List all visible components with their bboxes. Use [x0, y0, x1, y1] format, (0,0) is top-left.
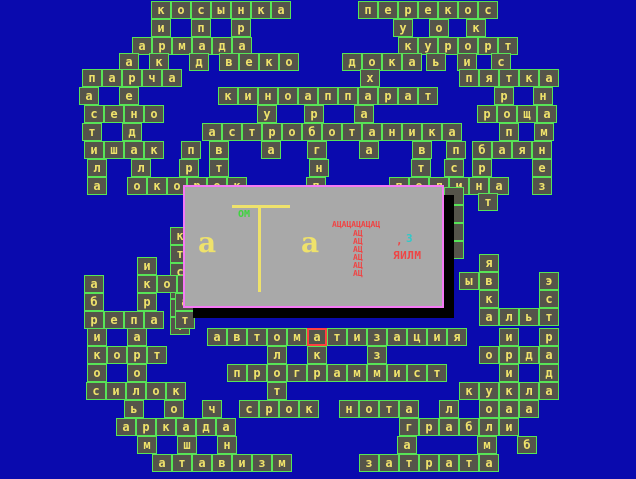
- crossword-cell[interactable]: п: [358, 1, 378, 19]
- crossword-cell[interactable]: а: [402, 53, 422, 71]
- crossword-cell[interactable]: б: [517, 436, 537, 454]
- crossword-cell[interactable]: д: [189, 53, 209, 71]
- crossword-cell[interactable]: а: [354, 105, 374, 123]
- crossword-cell[interactable]: а: [261, 141, 281, 159]
- crossword-cell[interactable]: р: [137, 293, 157, 311]
- crossword-cell[interactable]: о: [146, 382, 166, 400]
- crossword-cell[interactable]: а: [327, 364, 347, 382]
- crossword-cell[interactable]: с: [191, 1, 211, 19]
- crossword-cell[interactable]: у: [393, 19, 413, 37]
- crossword-cell[interactable]: к: [307, 346, 327, 364]
- crossword-cell[interactable]: о: [278, 87, 298, 105]
- crossword-cell[interactable]: р: [472, 159, 492, 177]
- crossword-cell[interactable]: ь: [426, 53, 446, 71]
- crossword-cell[interactable]: ь: [124, 400, 144, 418]
- crossword-cell[interactable]: с: [478, 1, 498, 19]
- cyan-z-label: З: [406, 233, 413, 244]
- crossword-cell[interactable]: и: [84, 141, 104, 159]
- crossword-cell[interactable]: а: [87, 177, 107, 195]
- crossword-cell[interactable]: и: [232, 454, 252, 472]
- crossword-cell[interactable]: л: [87, 159, 107, 177]
- crossword-cell[interactable]: т: [478, 193, 498, 211]
- crossword-cell[interactable]: п: [318, 87, 338, 105]
- crossword-cell[interactable]: г: [287, 364, 307, 382]
- crossword-cell[interactable]: п: [191, 19, 211, 37]
- crossword-cell[interactable]: т: [247, 328, 267, 346]
- crossword-cell[interactable]: о: [107, 346, 127, 364]
- crossword-cell[interactable]: г: [399, 418, 419, 436]
- crossword-cell[interactable]: л: [499, 308, 519, 326]
- crossword-cell[interactable]: а: [307, 328, 327, 346]
- crossword-cell[interactable]: а: [176, 418, 196, 436]
- crossword-cell[interactable]: о: [144, 105, 164, 123]
- crossword-cell[interactable]: т: [82, 123, 102, 141]
- crossword-cell[interactable]: к: [137, 275, 157, 293]
- crossword-cell[interactable]: о: [479, 400, 499, 418]
- crossword-cell[interactable]: а: [397, 436, 417, 454]
- crossword-cell[interactable]: р: [539, 328, 559, 346]
- crossword-cell[interactable]: б: [459, 418, 479, 436]
- crossword-cell[interactable]: е: [104, 105, 124, 123]
- crossword-cell[interactable]: а: [84, 275, 104, 293]
- crossword-cell[interactable]: а: [537, 105, 557, 123]
- crossword-cell[interactable]: к: [166, 382, 186, 400]
- crossword-cell[interactable]: р: [378, 87, 398, 105]
- crossword-cell[interactable]: е: [532, 159, 552, 177]
- crossword-cell[interactable]: а: [144, 311, 164, 329]
- crossword-cell[interactable]: м: [137, 436, 157, 454]
- crossword-cell[interactable]: а: [79, 87, 99, 105]
- crossword-cell[interactable]: с: [444, 159, 464, 177]
- crossword-cell[interactable]: и: [151, 19, 171, 37]
- crossword-cell[interactable]: а: [192, 454, 212, 472]
- crossword-cell[interactable]: н: [382, 123, 402, 141]
- crossword-cell[interactable]: а: [124, 141, 144, 159]
- crossword-cell[interactable]: м: [272, 454, 292, 472]
- crossword-cell[interactable]: а: [359, 141, 379, 159]
- crossword-cell[interactable]: р: [419, 418, 439, 436]
- crossword-cell[interactable]: э: [539, 272, 559, 290]
- crossword-cell[interactable]: у: [257, 105, 277, 123]
- crossword-cell[interactable]: т: [342, 123, 362, 141]
- crossword-cell[interactable]: а: [492, 141, 512, 159]
- crossword-cell[interactable]: а: [442, 123, 462, 141]
- crossword-cell[interactable]: о: [267, 328, 287, 346]
- crossword-cell[interactable]: и: [387, 364, 407, 382]
- crossword-cell[interactable]: р: [262, 123, 282, 141]
- big-letter-a-right: а: [301, 230, 319, 256]
- crossword-cell[interactable]: щ: [517, 105, 537, 123]
- crossword-cell[interactable]: а: [439, 418, 459, 436]
- crossword-cell[interactable]: к: [87, 346, 107, 364]
- crossword-cell[interactable]: х: [360, 69, 380, 87]
- crossword-cell[interactable]: а: [102, 69, 122, 87]
- crossword-cell[interactable]: а: [271, 1, 291, 19]
- dialog-window[interactable]: ОМ а а АЦАЦАЦАЦАЦ АЦАЦАЦАЦАЦАЦ , З ЯИЛМ: [183, 185, 444, 308]
- crossword-cell[interactable]: к: [299, 400, 319, 418]
- crossword-cell[interactable]: з: [252, 454, 272, 472]
- crossword-cell[interactable]: б: [472, 141, 492, 159]
- crossword-cell[interactable]: о: [359, 400, 379, 418]
- crossword-cell[interactable]: т: [459, 454, 479, 472]
- crossword-cell[interactable]: к: [144, 141, 164, 159]
- crossword-cell[interactable]: а: [379, 454, 399, 472]
- crossword-cell[interactable]: о: [157, 275, 177, 293]
- crossword-cell[interactable]: р: [231, 19, 251, 37]
- dialog-shadow: [444, 195, 454, 318]
- crossword-cell[interactable]: м: [534, 123, 554, 141]
- crossword-cell[interactable]: к: [218, 87, 238, 105]
- crossword-cell[interactable]: с: [407, 364, 427, 382]
- crossword-cell[interactable]: о: [171, 1, 191, 19]
- crossword-cell[interactable]: с: [86, 382, 106, 400]
- crossword-cell[interactable]: д: [196, 418, 216, 436]
- crossword-cell[interactable]: е: [378, 1, 398, 19]
- crossword-cell[interactable]: а: [479, 308, 499, 326]
- crossword-cell[interactable]: м: [367, 364, 387, 382]
- crossword-cell[interactable]: к: [151, 1, 171, 19]
- crossword-cell[interactable]: в: [479, 272, 499, 290]
- crossword-cell[interactable]: е: [119, 87, 139, 105]
- crossword-cell[interactable]: а: [216, 418, 236, 436]
- crossword-cell[interactable]: я: [512, 141, 532, 159]
- crossword-cell[interactable]: д: [539, 364, 559, 382]
- crossword-cell[interactable]: е: [104, 311, 124, 329]
- crossword-cell[interactable]: у: [479, 382, 499, 400]
- crossword-cell[interactable]: р: [398, 1, 418, 19]
- crossword-cell[interactable]: о: [479, 346, 499, 364]
- crossword-cell[interactable]: ь: [519, 308, 539, 326]
- crossword-cell[interactable]: з: [359, 454, 379, 472]
- crossword-cell[interactable]: с: [222, 123, 242, 141]
- crossword-cell[interactable]: г: [307, 141, 327, 159]
- crossword-cell[interactable]: а: [298, 87, 318, 105]
- crossword-cell[interactable]: а: [127, 328, 147, 346]
- crossword-cell[interactable]: а: [479, 454, 499, 472]
- yellow-t-bar-vertical: [258, 205, 261, 292]
- crossword-cell[interactable]: н: [339, 400, 359, 418]
- crossword-cell[interactable]: а: [162, 69, 182, 87]
- crossword-cell[interactable]: а: [116, 418, 136, 436]
- crossword-cell[interactable]: л: [479, 418, 499, 436]
- crossword-cell[interactable]: н: [124, 105, 144, 123]
- crossword-cell[interactable]: н: [217, 436, 237, 454]
- crossword-cell[interactable]: т: [427, 364, 447, 382]
- crossword-cell[interactable]: в: [219, 53, 239, 71]
- crossword-cell[interactable]: с: [84, 105, 104, 123]
- crossword-cell[interactable]: к: [147, 177, 167, 195]
- crossword-cell[interactable]: н: [309, 159, 329, 177]
- crossword-cell[interactable]: о: [279, 400, 299, 418]
- crossword-cell[interactable]: и: [106, 382, 126, 400]
- crossword-cell[interactable]: и: [137, 257, 157, 275]
- crossword-cell[interactable]: к: [251, 1, 271, 19]
- crossword-cell[interactable]: о: [164, 400, 184, 418]
- crossword-cell[interactable]: в: [209, 141, 229, 159]
- crossword-cell[interactable]: в: [227, 328, 247, 346]
- crossword-cell[interactable]: ц: [407, 328, 427, 346]
- crossword-cell[interactable]: м: [287, 328, 307, 346]
- yailm-label: ЯИЛМ: [393, 250, 422, 261]
- crossword-cell[interactable]: о: [87, 364, 107, 382]
- big-letter-a-left: а: [198, 230, 216, 256]
- crossword-cell[interactable]: ш: [177, 436, 197, 454]
- crossword-cell[interactable]: и: [347, 328, 367, 346]
- crossword-cell[interactable]: а: [499, 400, 519, 418]
- crossword-cell[interactable]: ы: [459, 272, 479, 290]
- crossword-cell[interactable]: в: [412, 141, 432, 159]
- crossword-cell[interactable]: а: [202, 123, 222, 141]
- crossword-cell[interactable]: л: [131, 159, 151, 177]
- crossword-cell[interactable]: м: [477, 436, 497, 454]
- crossword-cell[interactable]: к: [438, 1, 458, 19]
- crossword-cell[interactable]: л: [126, 382, 146, 400]
- crossword-cell[interactable]: т: [172, 454, 192, 472]
- crossword-cell[interactable]: к: [519, 69, 539, 87]
- crossword-cell[interactable]: з: [532, 177, 552, 195]
- yellow-t-bar-horizontal: [232, 205, 290, 208]
- crossword-cell[interactable]: д: [342, 53, 362, 71]
- crossword-cell[interactable]: и: [499, 418, 519, 436]
- crossword-cell[interactable]: а: [519, 400, 539, 418]
- crossword-cell[interactable]: а: [362, 123, 382, 141]
- crossword-cell[interactable]: а: [539, 346, 559, 364]
- crossword-cell[interactable]: т: [399, 454, 419, 472]
- crossword-cell[interactable]: т: [499, 69, 519, 87]
- crossword-cell[interactable]: ч: [202, 400, 222, 418]
- crossword-cell[interactable]: к: [479, 290, 499, 308]
- crossword-cell[interactable]: т: [267, 382, 287, 400]
- crossword-cell[interactable]: в: [212, 454, 232, 472]
- crossword-cell[interactable]: и: [499, 328, 519, 346]
- crossword-cell[interactable]: д: [519, 346, 539, 364]
- crossword-cell[interactable]: т: [209, 159, 229, 177]
- crossword-cell[interactable]: и: [87, 328, 107, 346]
- crossword-cell[interactable]: о: [497, 105, 517, 123]
- crossword-cell[interactable]: т: [242, 123, 262, 141]
- crossword-cell[interactable]: а: [439, 454, 459, 472]
- crossword-cell[interactable]: к: [422, 123, 442, 141]
- game-screen: косынкаипрперекосуокармадакурортакдвекод…: [0, 0, 636, 479]
- crossword-cell[interactable]: р: [179, 159, 199, 177]
- crossword-cell[interactable]: п: [227, 364, 247, 382]
- crossword-cell[interactable]: к: [156, 418, 176, 436]
- crossword-cell[interactable]: к: [466, 19, 486, 37]
- crossword-cell[interactable]: т: [327, 328, 347, 346]
- crossword-cell[interactable]: з: [367, 346, 387, 364]
- crossword-cell[interactable]: о: [127, 364, 147, 382]
- crossword-cell[interactable]: и: [402, 123, 422, 141]
- crossword-cell[interactable]: р: [477, 105, 497, 123]
- dialog-shadow: [193, 308, 454, 318]
- crossword-cell[interactable]: ш: [104, 141, 124, 159]
- crossword-cell[interactable]: р: [307, 364, 327, 382]
- crossword-cell[interactable]: а: [358, 87, 378, 105]
- crossword-cell[interactable]: т: [411, 159, 431, 177]
- crossword-cell[interactable]: я: [479, 254, 499, 272]
- crossword-cell[interactable]: т: [418, 87, 438, 105]
- crossword-cell[interactable]: л: [267, 346, 287, 364]
- crossword-cell[interactable]: т: [539, 308, 559, 326]
- crossword-cell[interactable]: р: [494, 87, 514, 105]
- crossword-cell[interactable]: о: [267, 364, 287, 382]
- crossword-cell[interactable]: л: [519, 382, 539, 400]
- crossword-cell[interactable]: и: [427, 328, 447, 346]
- crossword-cell[interactable]: н: [231, 1, 251, 19]
- crossword-cell[interactable]: р: [247, 364, 267, 382]
- crossword-cell[interactable]: к: [259, 53, 279, 71]
- crossword-cell[interactable]: р: [419, 454, 439, 472]
- crossword-cell[interactable]: з: [367, 328, 387, 346]
- crossword-cell[interactable]: а: [399, 400, 419, 418]
- crossword-cell[interactable]: к: [382, 53, 402, 71]
- crossword-cell[interactable]: п: [499, 123, 519, 141]
- crossword-cell[interactable]: я: [447, 328, 467, 346]
- red-ac-line: АЦ: [353, 270, 363, 278]
- crossword-cell[interactable]: р: [304, 105, 324, 123]
- crossword-cell[interactable]: о: [429, 19, 449, 37]
- crossword-cell[interactable]: п: [459, 69, 479, 87]
- crossword-cell[interactable]: м: [347, 364, 367, 382]
- red-ac-title: АЦАЦАЦАЦАЦ: [332, 221, 380, 229]
- crossword-cell[interactable]: р: [84, 311, 104, 329]
- crossword-cell[interactable]: ы: [211, 1, 231, 19]
- crossword-cell[interactable]: к: [459, 382, 479, 400]
- crossword-cell[interactable]: д: [122, 123, 142, 141]
- crossword-cell[interactable]: б: [84, 293, 104, 311]
- crossword-cell[interactable]: р: [499, 346, 519, 364]
- crossword-cell[interactable]: о: [127, 177, 147, 195]
- crossword-cell[interactable]: а: [539, 382, 559, 400]
- crossword-cell[interactable]: с: [539, 290, 559, 308]
- om-label: ОМ: [238, 210, 250, 220]
- crossword-cell[interactable]: п: [338, 87, 358, 105]
- crossword-cell[interactable]: с: [239, 400, 259, 418]
- crossword-cell[interactable]: н: [532, 141, 552, 159]
- crossword-cell[interactable]: о: [282, 123, 302, 141]
- crossword-cell[interactable]: р: [127, 346, 147, 364]
- crossword-cell[interactable]: ч: [142, 69, 162, 87]
- crossword-cell[interactable]: р: [259, 400, 279, 418]
- crossword-cell[interactable]: а: [387, 328, 407, 346]
- crossword-cell[interactable]: а: [539, 69, 559, 87]
- crossword-cell[interactable]: б: [302, 123, 322, 141]
- crossword-cell[interactable]: т: [147, 346, 167, 364]
- crossword-cell[interactable]: т: [175, 311, 195, 329]
- red-comma: ,: [396, 235, 403, 246]
- crossword-cell[interactable]: р: [122, 69, 142, 87]
- crossword-cell[interactable]: о: [458, 1, 478, 19]
- crossword-cell[interactable]: о: [322, 123, 342, 141]
- crossword-cell[interactable]: а: [398, 87, 418, 105]
- crossword-cell[interactable]: п: [82, 69, 102, 87]
- crossword-cell[interactable]: п: [124, 311, 144, 329]
- crossword-cell[interactable]: р: [136, 418, 156, 436]
- crossword-cell[interactable]: и: [499, 364, 519, 382]
- crossword-cell[interactable]: п: [446, 141, 466, 159]
- crossword-cell[interactable]: к: [499, 382, 519, 400]
- crossword-cell[interactable]: т: [379, 400, 399, 418]
- crossword-cell[interactable]: е: [239, 53, 259, 71]
- crossword-cell[interactable]: н: [533, 87, 553, 105]
- crossword-cell[interactable]: я: [479, 69, 499, 87]
- crossword-cell[interactable]: и: [238, 87, 258, 105]
- crossword-cell[interactable]: н: [258, 87, 278, 105]
- crossword-cell[interactable]: а: [207, 328, 227, 346]
- crossword-cell[interactable]: л: [439, 400, 459, 418]
- crossword-cell[interactable]: е: [418, 1, 438, 19]
- crossword-cell[interactable]: а: [152, 454, 172, 472]
- crossword-cell[interactable]: о: [279, 53, 299, 71]
- crossword-cell[interactable]: п: [181, 141, 201, 159]
